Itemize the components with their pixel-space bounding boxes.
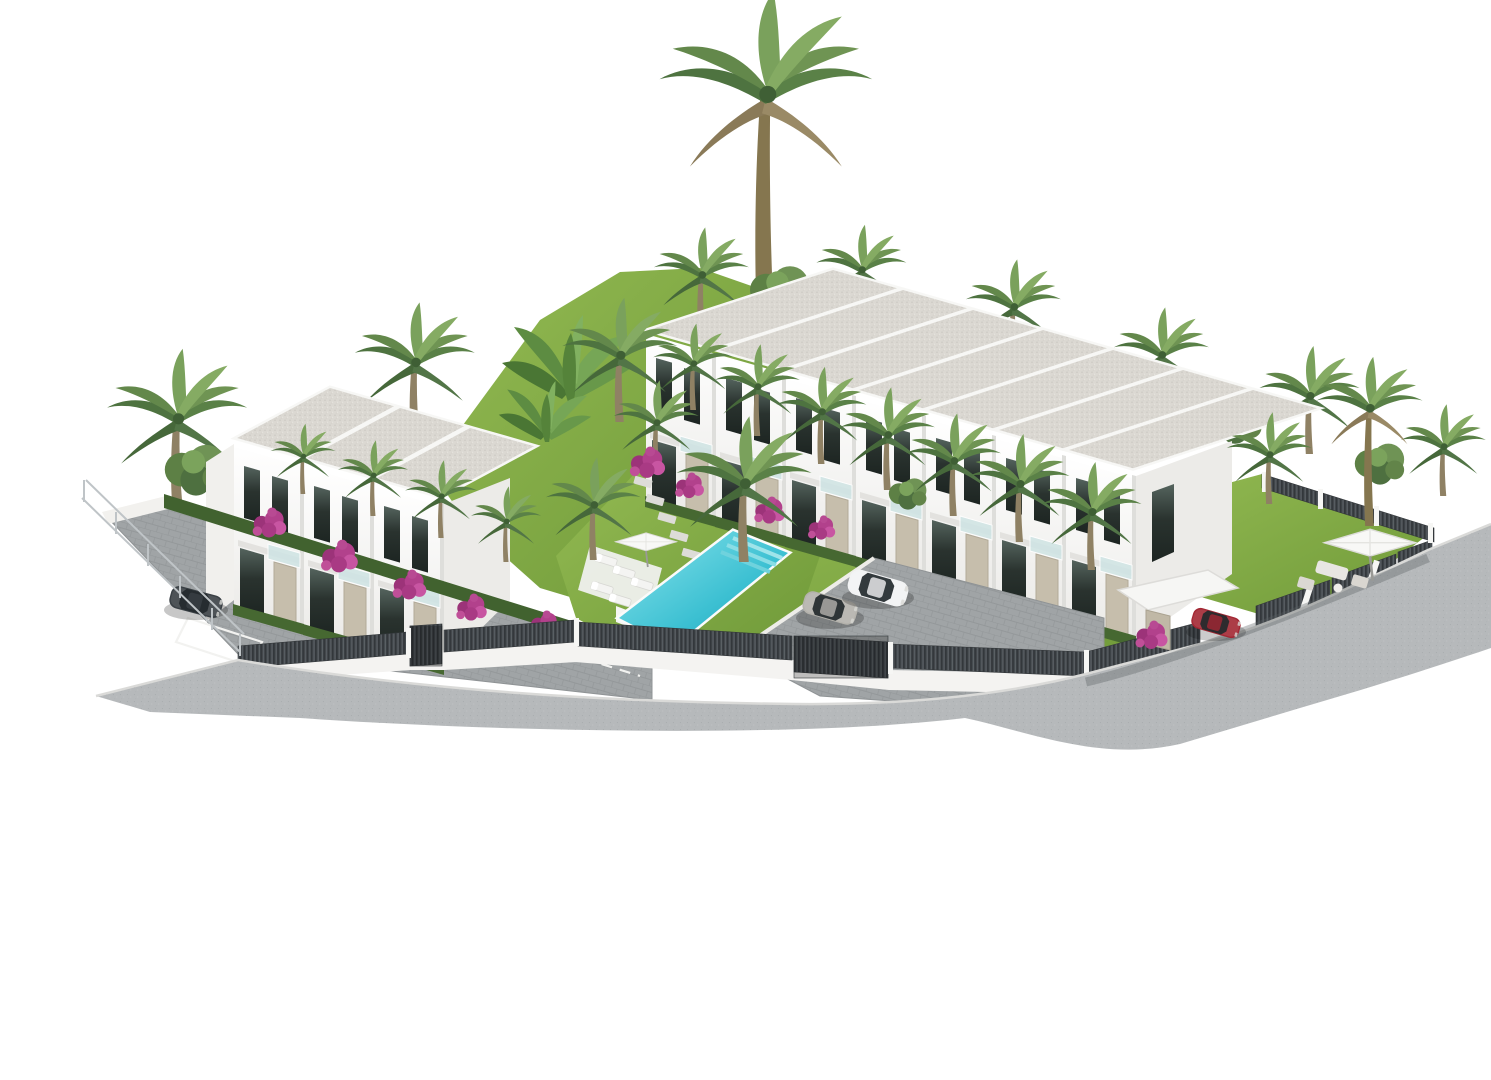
row-end-window	[1152, 484, 1174, 562]
render-canvas	[0, 0, 1491, 1080]
street-vehicle	[1186, 606, 1246, 641]
development-render	[0, 0, 1491, 1080]
palm-tree	[1401, 404, 1486, 496]
garden-tree	[1355, 444, 1404, 485]
